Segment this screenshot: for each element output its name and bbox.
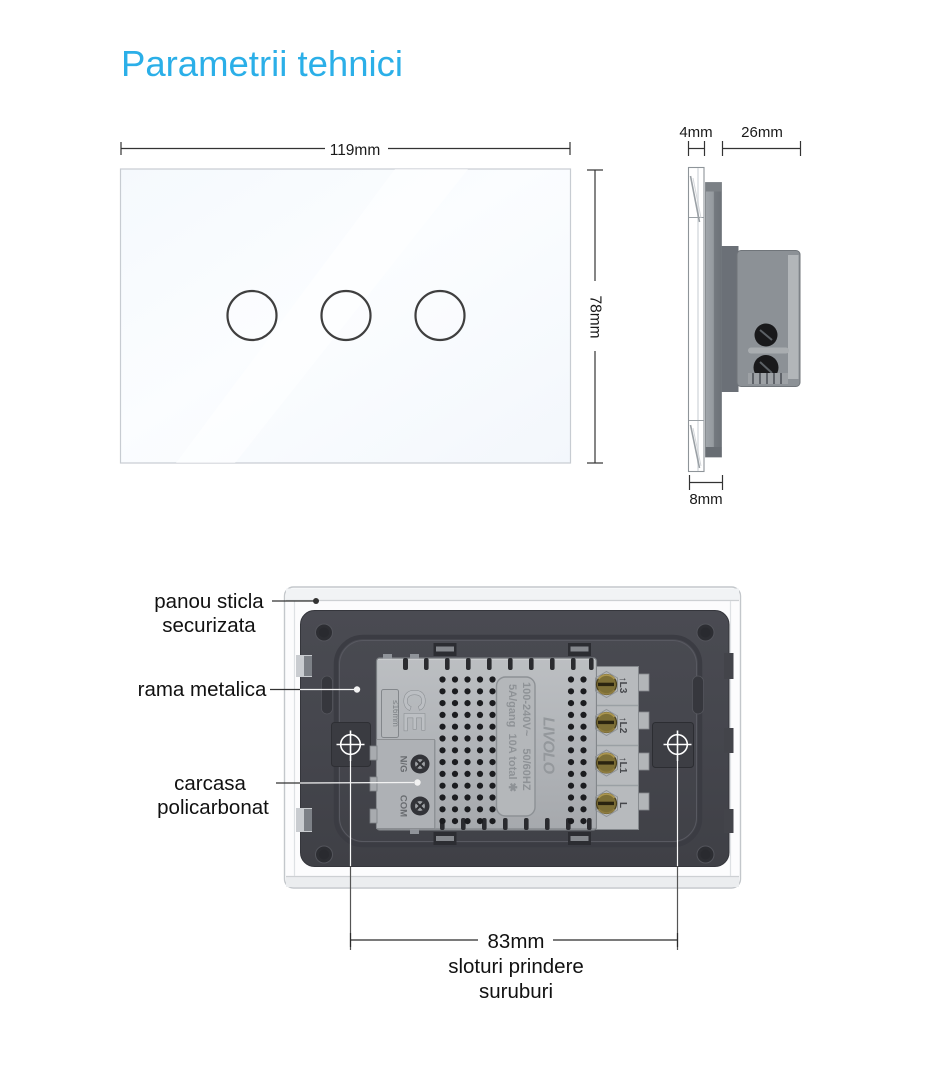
svg-text:LIVOLO: LIVOLO [540,717,557,775]
svg-text:COM: COM [398,795,409,817]
svg-text:securizata: securizata [162,614,256,637]
svg-text:↑L2: ↑L2 [617,717,628,734]
svg-text:↑L1: ↑L1 [617,757,628,774]
svg-text:119mm: 119mm [330,142,381,159]
svg-text:83mm: 83mm [488,930,545,953]
svg-text:policarbonat: policarbonat [157,796,269,819]
svg-text:CE: CE [397,689,432,732]
svg-text:↑L3: ↑L3 [617,677,628,694]
svg-text:rama metalica: rama metalica [138,678,267,701]
svg-text:suruburi: suruburi [479,980,553,1003]
svg-text:100-240V~ 50/60HZ: 100-240V~ 50/60HZ [520,682,532,791]
svg-text:78mm: 78mm [587,295,604,338]
svg-text:8mm: 8mm [689,491,722,508]
svg-text:Parametrii tehnici: Parametrii tehnici [121,43,403,84]
svg-text:5A/gang 10A total ✱: 5A/gang 10A total ✱ [506,684,518,792]
svg-text:sloturi prindere: sloturi prindere [448,955,584,978]
svg-text:N/G: N/G [398,756,409,773]
svg-text:4mm: 4mm [679,124,712,141]
svg-text:carcasa: carcasa [174,772,246,795]
svg-text:26mm: 26mm [741,124,783,141]
svg-text:L: L [617,802,628,808]
svg-text:panou sticla: panou sticla [154,590,264,613]
